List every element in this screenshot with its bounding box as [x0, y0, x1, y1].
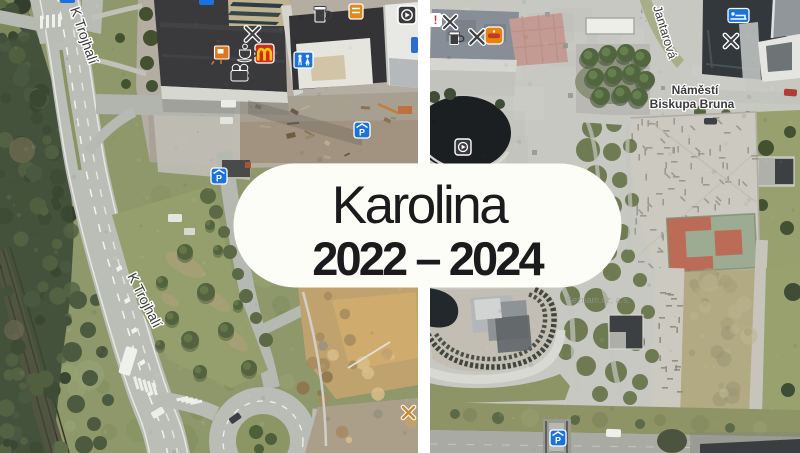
svg-text:Biskupa Bruna: Biskupa Bruna	[650, 97, 735, 111]
svg-text:Seznam.cz, a.s.: Seznam.cz, a.s.	[566, 295, 630, 305]
svg-text:!: !	[434, 15, 438, 27]
svg-text:P: P	[359, 128, 365, 138]
svg-text:Karolina: Karolina	[332, 176, 509, 235]
svg-text:Náměstí: Náměstí	[672, 83, 719, 97]
svg-text:P: P	[555, 436, 561, 446]
svg-text:P: P	[216, 174, 222, 184]
svg-text:2022 – 2024: 2022 – 2024	[312, 232, 544, 285]
